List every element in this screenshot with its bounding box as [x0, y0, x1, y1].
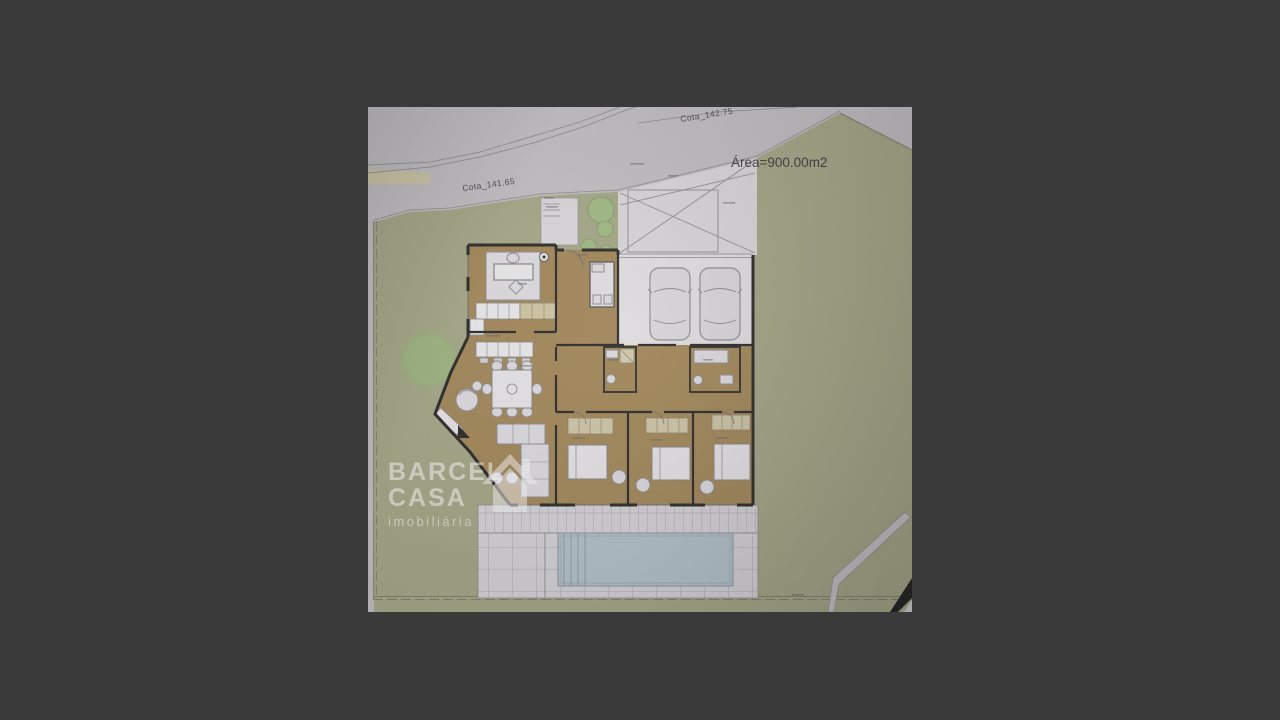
office-room	[486, 252, 549, 300]
screenshot-root: { "scene": { "background_color": "#3a3a3…	[0, 0, 1280, 720]
sofa-horizontal	[497, 424, 545, 444]
chair-3	[700, 480, 714, 494]
chair-2	[636, 478, 650, 492]
armchair-round	[456, 389, 478, 411]
bed-1	[568, 445, 607, 479]
plot-area-label: Área=900.00m2	[731, 155, 827, 170]
wardrobe-3	[712, 415, 750, 430]
bath1-sink	[606, 350, 618, 358]
bathtub	[694, 350, 728, 363]
wardrobe-1	[568, 418, 613, 434]
kitchen-island	[476, 342, 533, 357]
bath2-sink	[720, 375, 733, 384]
bed-2	[652, 447, 690, 480]
wc-toilet	[593, 295, 601, 304]
car-1	[648, 268, 692, 340]
site-plan-drawing: Cota_141.65 Cota_142.75 Área=900.00m2	[368, 107, 912, 612]
entry-walkway	[541, 198, 578, 245]
wc-bidet	[604, 295, 612, 304]
bath2-toilet	[694, 376, 703, 385]
chair-1	[612, 470, 626, 484]
bath1-toilet	[607, 375, 616, 384]
house-icon	[482, 452, 540, 514]
side-table-round	[472, 381, 482, 391]
dining-table	[492, 370, 532, 408]
desk-chair	[507, 253, 519, 263]
swimming-pool	[558, 533, 733, 586]
wardrobe-2	[646, 418, 688, 433]
kitchen-counter-wood	[520, 303, 556, 319]
car-2	[698, 268, 742, 340]
bed-3	[714, 444, 750, 480]
desk	[494, 264, 533, 280]
site-plan-photo: Cota_141.65 Cota_142.75 Área=900.00m2	[368, 107, 912, 612]
wc-sink	[592, 264, 604, 272]
